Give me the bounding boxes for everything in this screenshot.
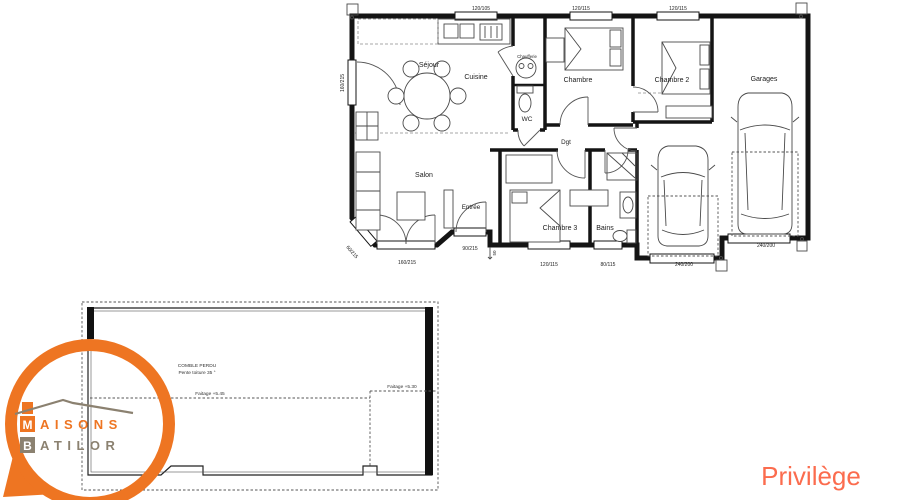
- kitchen-counter-icon: [358, 19, 510, 44]
- attic-plan: COMBLE PERDU Pente toiture 35 ° Faitage …: [82, 302, 438, 490]
- attic-subtitle: Pente toiture 35 °: [178, 370, 215, 376]
- ridge-label-right: Faitage +5.30: [387, 384, 417, 390]
- dim-label-bottom-bains: 80/115: [601, 262, 616, 268]
- attic-outline: [88, 308, 432, 475]
- room-label-chambre3: Chambre 3: [543, 225, 578, 232]
- dim-label-step: 50: [492, 250, 497, 256]
- room-label-sejour: Séjour: [419, 62, 440, 69]
- logo-word-batilor: ATILOR: [40, 438, 120, 453]
- attic-wall-bar-left: [87, 307, 94, 339]
- room-label-cuisine: Cuisine: [464, 74, 487, 81]
- toilet-icon: [613, 230, 636, 243]
- bed-icon: [546, 28, 623, 70]
- maisons-batilor-logo: M AISONS B ATILOR: [3, 345, 169, 500]
- room-label-chaufferie: Chaufferie: [517, 54, 537, 59]
- dim-label-garage-left: 240/200: [675, 262, 693, 268]
- toilet-icon: [517, 86, 533, 112]
- room-label-chambre2: Chambre 2: [655, 77, 690, 84]
- boiler-icon: [516, 58, 536, 78]
- room-label-wc: WC: [522, 116, 533, 123]
- room-label-salon: Salon: [415, 172, 433, 179]
- room-label-dgt: Dgt: [561, 139, 571, 146]
- plan-canvas: Séjour Cuisine Chaufferie WC Chambre Cha…: [0, 0, 900, 500]
- ridge-label-left: Faitage +5.45: [195, 391, 225, 397]
- attic-outline-inner: [91, 311, 429, 472]
- dim-label-bottom-salon: 160/215: [398, 260, 416, 266]
- dim-label-door-entree: 90/215: [462, 246, 478, 252]
- dim-label-bay: 60/215: [344, 245, 359, 261]
- car-icon: [648, 146, 718, 256]
- logo-initial-m: M: [23, 418, 33, 432]
- coffee-table-icon: [397, 192, 425, 220]
- dim-label-garage-right: 240/200: [757, 243, 775, 249]
- room-label-entree: Entrée: [462, 204, 481, 211]
- sink-icon: [620, 192, 636, 218]
- shower-icon: [607, 153, 637, 180]
- tv-unit-icon: [444, 190, 453, 228]
- dim-label-top-chambre1: 120/115: [572, 6, 590, 12]
- model-name: Privilège: [761, 461, 861, 491]
- dim-label-left-sejour: 160/215: [340, 74, 346, 92]
- shelf-icon: [356, 112, 378, 140]
- dim-label-bottom-chambre3: 120/115: [540, 262, 558, 268]
- brochure-page: Séjour Cuisine Chaufferie WC Chambre Cha…: [0, 0, 900, 500]
- room-label-bains: Bains: [596, 225, 614, 232]
- logo-initial-b: B: [23, 439, 32, 453]
- room-label-garages: Garages: [751, 76, 778, 83]
- dim-label-top-chambre2: 120/115: [669, 6, 687, 12]
- attic-outer-dashed: [82, 302, 438, 490]
- logo-word-maisons: AISONS: [40, 417, 123, 432]
- dim-label-top-cuisine: 120/105: [472, 6, 490, 12]
- attic-title: COMBLE PERDU: [178, 363, 217, 369]
- dining-table-icon: [388, 61, 466, 131]
- floor-plan: Séjour Cuisine Chaufferie WC Chambre Cha…: [340, 3, 808, 271]
- sofa-icon: [356, 152, 380, 230]
- car-icon: [731, 93, 799, 236]
- room-label-chambre1: Chambre: [564, 77, 593, 84]
- ridge-lines: [90, 391, 436, 466]
